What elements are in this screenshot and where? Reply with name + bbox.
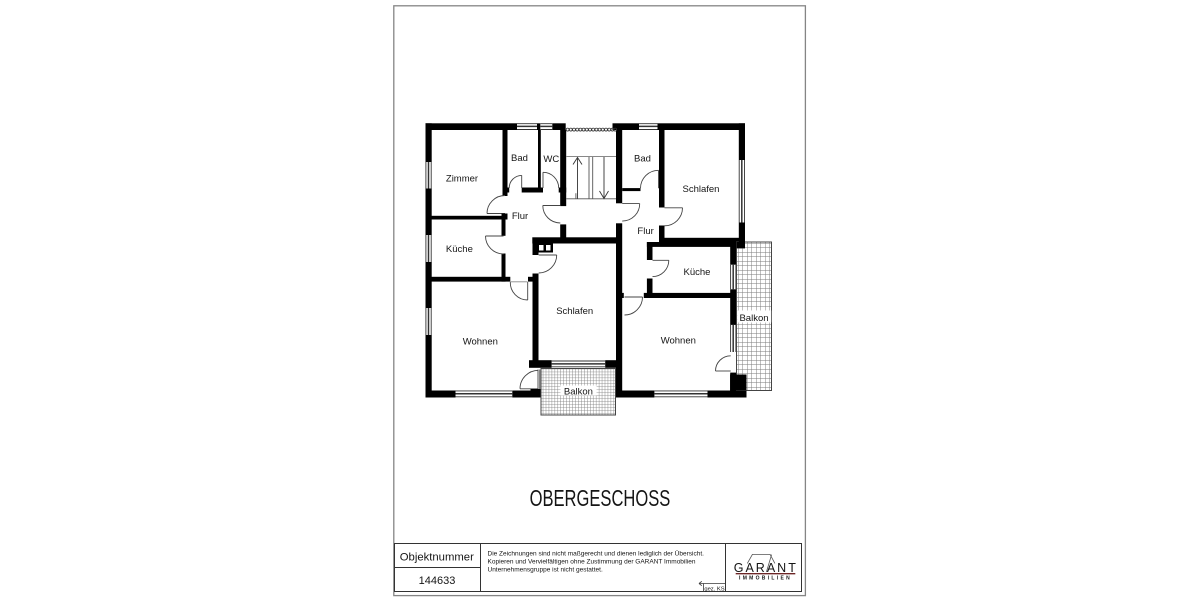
svg-text:Flur: Flur	[637, 226, 653, 237]
svg-text:Wohnen: Wohnen	[661, 336, 696, 347]
svg-text:Kopieren und Vervielfältigen o: Kopieren und Vervielfältigen ohne Zustim…	[488, 559, 696, 566]
svg-text:Schlafen: Schlafen	[683, 184, 720, 195]
svg-text:Küche: Küche	[684, 267, 711, 278]
svg-text:Balkon: Balkon	[564, 387, 593, 398]
svg-text:WC: WC	[543, 154, 559, 165]
svg-text:Zimmer: Zimmer	[446, 174, 478, 185]
svg-text:OBERGESCHOSS: OBERGESCHOSS	[530, 486, 671, 511]
svg-text:Wohnen: Wohnen	[463, 337, 498, 348]
svg-text:Bad: Bad	[634, 154, 651, 165]
svg-text:Flur: Flur	[512, 211, 528, 222]
svg-text:Bad: Bad	[511, 153, 528, 164]
svg-text:Schlafen: Schlafen	[556, 306, 593, 317]
svg-text:gez. KS: gez. KS	[704, 586, 724, 592]
svg-text:Balkon: Balkon	[739, 313, 768, 324]
svg-text:Küche: Küche	[446, 244, 473, 255]
svg-text:Unternehmensgruppe ist nicht g: Unternehmensgruppe ist nicht gestattet.	[488, 567, 603, 574]
svg-text:Objektnummer: Objektnummer	[400, 552, 474, 564]
svg-text:Die Zeichnungen sind nicht maß: Die Zeichnungen sind nicht maßgerecht un…	[488, 550, 705, 558]
svg-text:IMMOBILIEN: IMMOBILIEN	[739, 575, 792, 581]
svg-text:144633: 144633	[419, 575, 456, 587]
